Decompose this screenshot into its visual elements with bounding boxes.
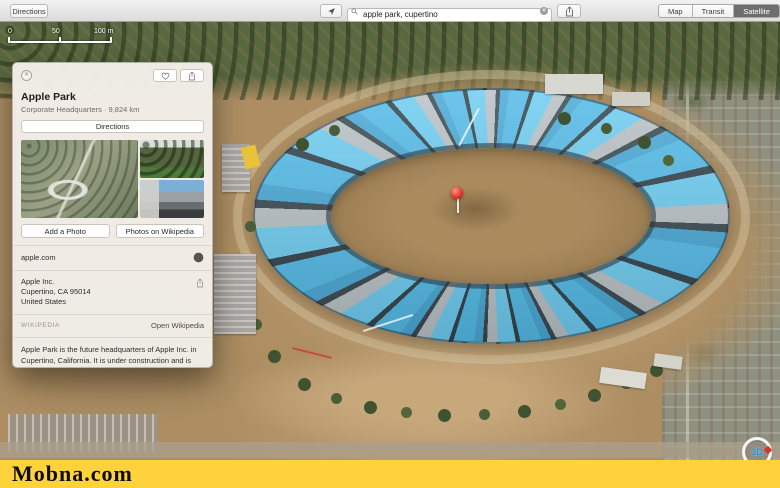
tab-satellite-label: Satellite <box>743 7 770 16</box>
card-directions-button[interactable]: Directions <box>21 120 204 133</box>
address-block: Apple Inc. Cupertino, CA 95014 United St… <box>21 277 204 307</box>
favorite-button[interactable] <box>153 69 177 82</box>
heart-icon <box>161 72 170 80</box>
share-icon <box>565 6 574 17</box>
divider <box>13 314 212 315</box>
divider <box>13 337 212 338</box>
window-toolbar: Directions ✕ Map Transit Satellite <box>0 0 780 22</box>
clear-search-icon[interactable]: ✕ <box>540 7 548 15</box>
safari-compass-icon <box>193 252 204 263</box>
photos-on-wikipedia-label: Photos on Wikipedia <box>126 227 194 236</box>
address-line-3: United States <box>21 297 204 307</box>
divider <box>13 245 212 246</box>
share-icon <box>188 71 196 81</box>
photo-street[interactable] <box>140 180 204 218</box>
map-pin-stick <box>457 198 459 213</box>
map-road-bottom <box>0 442 780 458</box>
wikipedia-header-row: WIKIPEDIA Open Wikipedia <box>21 321 204 330</box>
card-header: ✕ <box>21 69 204 85</box>
directions-button-label: Directions <box>12 7 45 16</box>
add-photo-label: Add a Photo <box>45 227 86 236</box>
address-line-1: Apple Inc. <box>21 277 204 287</box>
share-place-button[interactable] <box>180 69 204 82</box>
tab-transit-label: Transit <box>702 7 725 16</box>
share-address-button[interactable] <box>196 278 204 288</box>
search-icon <box>351 8 358 15</box>
tab-map[interactable]: Map <box>659 5 693 17</box>
tab-map-label: Map <box>668 7 683 16</box>
place-subtitle: Corporate Headquarters · 9,824 km <box>21 105 204 114</box>
open-wikipedia-link[interactable]: Open Wikipedia <box>151 321 204 330</box>
website-row[interactable]: apple.com <box>21 252 204 263</box>
photo-gallery <box>21 140 204 218</box>
compass-needle-icon <box>764 446 772 454</box>
share-button[interactable] <box>557 4 581 18</box>
apple-park-courtyard <box>331 148 651 284</box>
website-link[interactable]: apple.com <box>21 253 56 262</box>
search-input[interactable] <box>347 8 552 22</box>
current-location-button[interactable] <box>320 4 342 18</box>
divider <box>13 270 212 271</box>
place-info-card: ✕ Apple Park Corporate Headquarters · 9,… <box>12 62 213 368</box>
add-photo-button[interactable]: Add a Photo <box>21 224 110 238</box>
scale-bar: 0 50 100 m <box>8 28 118 50</box>
scale-label-0: 0 <box>8 28 12 35</box>
3d-label: 3D <box>751 447 763 457</box>
watermark-text: Mobna.com <box>12 461 133 487</box>
compass-3d-control[interactable]: 3D <box>742 437 772 460</box>
watermark-bar: Mobna.com <box>0 460 780 488</box>
map-pin[interactable] <box>451 187 463 199</box>
wikipedia-heading: WIKIPEDIA <box>21 322 60 329</box>
wikipedia-description: Apple Park is the future headquarters of… <box>21 345 204 368</box>
location-arrow-icon <box>327 7 336 16</box>
scale-tick <box>110 37 112 42</box>
photo-trees[interactable] <box>140 140 204 178</box>
photos-on-wikipedia-button[interactable]: Photos on Wikipedia <box>116 224 205 238</box>
scale-label-100m: 100 m <box>94 28 113 35</box>
map-building <box>545 74 603 94</box>
card-directions-label: Directions <box>96 122 129 131</box>
tab-satellite[interactable]: Satellite <box>734 5 779 17</box>
tab-transit[interactable]: Transit <box>693 5 735 17</box>
share-icon <box>196 278 204 288</box>
scale-label-50: 50 <box>52 28 60 35</box>
map-mode-segmented-control: Map Transit Satellite <box>658 4 780 18</box>
place-title: Apple Park <box>21 91 204 103</box>
close-icon[interactable]: ✕ <box>21 70 32 81</box>
map-building <box>214 254 256 334</box>
map-building <box>612 92 650 106</box>
scale-tick <box>59 37 61 42</box>
address-line-2: Cupertino, CA 95014 <box>21 287 204 297</box>
directions-button[interactable]: Directions <box>10 4 48 18</box>
photo-aerial[interactable] <box>21 140 138 218</box>
scale-tick <box>8 37 10 42</box>
search-field[interactable]: ✕ <box>347 4 552 18</box>
